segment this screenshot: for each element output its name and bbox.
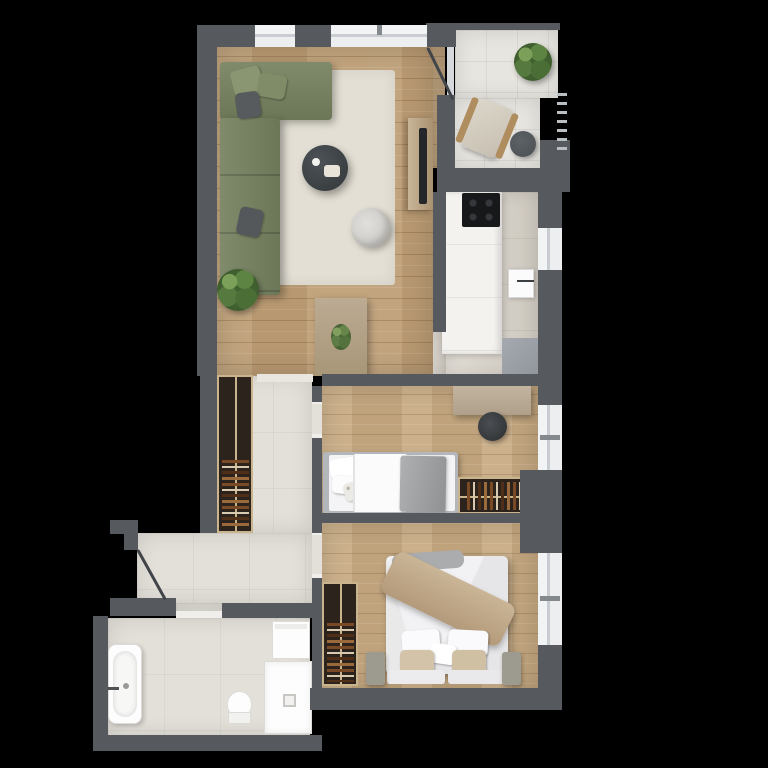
headboard-cushion-right bbox=[448, 670, 506, 684]
living-hall-threshold bbox=[257, 374, 313, 382]
desk bbox=[453, 386, 531, 415]
single-bed bbox=[323, 452, 458, 514]
wall-living-kitchen bbox=[433, 192, 446, 332]
wall-hall-right-c bbox=[312, 578, 322, 690]
wall-between-bedrooms bbox=[322, 513, 538, 523]
wall-bath-bottom bbox=[93, 735, 322, 751]
kitchen-door-panel bbox=[508, 269, 534, 298]
dining-table bbox=[315, 298, 367, 376]
wardrobe-clothes bbox=[464, 482, 520, 510]
desk-chair bbox=[478, 412, 507, 441]
coffee-tray bbox=[324, 165, 340, 177]
wall-entry-hinge bbox=[124, 534, 138, 550]
wall-master-bottom bbox=[310, 688, 562, 710]
small-bedroom-doorway bbox=[312, 404, 322, 434]
bathroom-threshold bbox=[176, 611, 222, 618]
tv bbox=[419, 128, 427, 204]
hallway-wardrobe bbox=[217, 375, 253, 533]
wall-bath-left bbox=[93, 616, 108, 746]
balcony-railing bbox=[557, 93, 567, 155]
foot-bench-right bbox=[502, 652, 521, 685]
dining-centerpiece bbox=[331, 324, 351, 350]
washer-panel bbox=[275, 624, 307, 629]
wall-entry-stub-top bbox=[110, 520, 138, 534]
sofa-pillow-gray-1 bbox=[234, 90, 261, 119]
toilet-tank bbox=[228, 712, 251, 724]
kitchen-window bbox=[538, 228, 562, 270]
wall-left bbox=[197, 25, 217, 376]
wall-right-3 bbox=[538, 645, 562, 690]
living-plant bbox=[217, 269, 259, 311]
small-window-divider bbox=[540, 435, 560, 440]
wall-entry-stub-bottom bbox=[110, 598, 176, 616]
wall-living-balcony bbox=[437, 95, 455, 168]
balcony-side-table bbox=[510, 131, 536, 157]
pouf-chair bbox=[351, 208, 390, 247]
shower-tray bbox=[264, 661, 312, 734]
wall-hall-left bbox=[200, 376, 217, 533]
kitchen-cabinet bbox=[502, 338, 538, 376]
door-handle bbox=[517, 280, 534, 282]
wall-right-pillar bbox=[520, 470, 562, 553]
master-window-divider bbox=[540, 596, 560, 601]
wall-top-2 bbox=[295, 25, 331, 47]
wardrobe-clothes bbox=[222, 457, 249, 527]
wall-hall-right-a bbox=[312, 386, 322, 402]
wall-dining-bedroom bbox=[322, 374, 562, 386]
window-divider bbox=[377, 25, 382, 35]
wardrobe-clothes bbox=[327, 620, 354, 682]
living-window-left bbox=[255, 25, 295, 47]
small-bedroom-wardrobe bbox=[458, 477, 524, 514]
wall-right-1 bbox=[538, 192, 562, 228]
cooktop bbox=[462, 193, 500, 227]
wall-top-3 bbox=[426, 23, 456, 47]
bathtub-drain bbox=[123, 683, 129, 689]
sofa-body bbox=[220, 118, 280, 295]
floor-plan-render bbox=[0, 0, 768, 768]
master-bedroom-doorway bbox=[312, 535, 322, 574]
wall-bath-top-right bbox=[222, 603, 322, 618]
master-wardrobe bbox=[322, 582, 358, 686]
washing-machine bbox=[272, 621, 310, 659]
bathtub-faucet bbox=[107, 687, 119, 690]
double-bed bbox=[386, 554, 508, 686]
shower-drain bbox=[283, 694, 296, 707]
bathtub bbox=[108, 644, 142, 724]
single-blanket-gray bbox=[400, 456, 447, 513]
wall-kitchen-top bbox=[437, 168, 570, 192]
wall-hall-right-b bbox=[312, 438, 322, 533]
foot-bench-left bbox=[366, 652, 385, 685]
sofa-pillow-green-2 bbox=[256, 72, 288, 100]
coffee-cup bbox=[312, 158, 320, 166]
headboard-cushion-left bbox=[387, 670, 445, 684]
balcony-plant bbox=[514, 43, 552, 81]
wall-balcony-top bbox=[455, 23, 560, 30]
coffee-table bbox=[302, 145, 348, 191]
